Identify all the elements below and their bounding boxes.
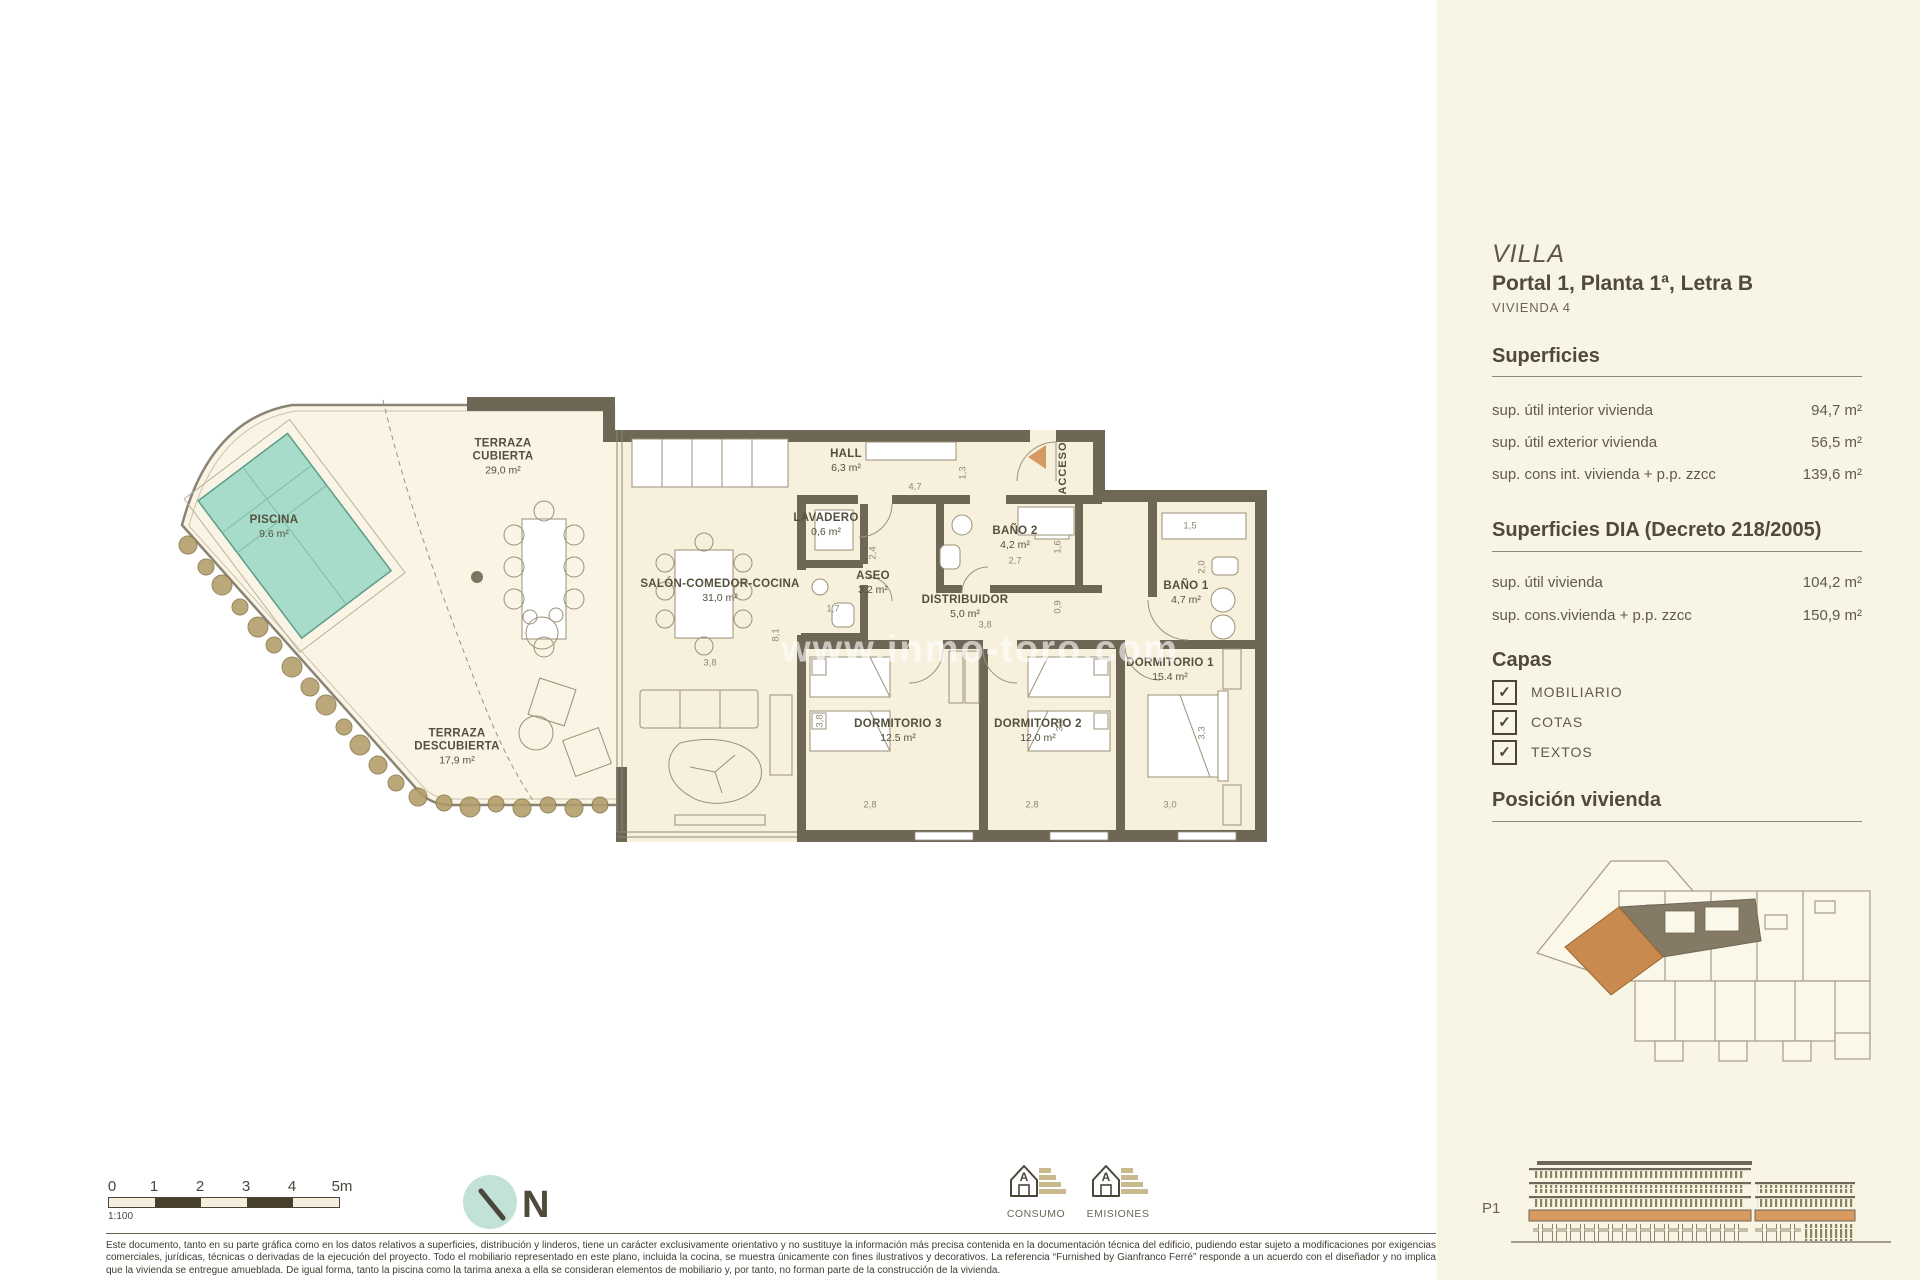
room-label: TERRAZA DESCUBIERTA17,9 m²	[414, 728, 500, 767]
svg-text:A: A	[1102, 1170, 1111, 1184]
room-label: HALL6,3 m²	[830, 448, 862, 474]
rule	[1492, 551, 1862, 552]
scale-bar: 0 1 2 3 4 5m 1:100	[108, 1178, 368, 1228]
row-value: 56,5 m²	[1811, 434, 1862, 451]
energy-label: CONSUMO	[1000, 1208, 1072, 1220]
room-label: LAVADERO0,6 m²	[793, 512, 858, 538]
row-label: sup. cons int. vivienda + p.p. zzcc	[1492, 466, 1716, 483]
room-label: DORMITORIO 212.0 m²	[994, 718, 1082, 744]
dimension-label: 0,9	[1053, 600, 1064, 613]
unit-number: VIVIENDA 4	[1492, 300, 1571, 315]
energy-label: EMISIONES	[1082, 1208, 1154, 1220]
floor-plan: ACCESO www.inmo-toro.com TERRAZA CUBIERT…	[170, 395, 1270, 855]
superficies-row: sup. útil exterior vivienda 56,5 m²	[1492, 434, 1862, 452]
row-value: 139,6 m²	[1803, 466, 1862, 483]
dimension-label: 8,1	[771, 628, 782, 641]
dimension-label: 4,7	[908, 482, 921, 493]
rule	[1492, 821, 1862, 822]
unit-subtitle: Portal 1, Planta 1ª, Letra B	[1492, 272, 1753, 296]
superficies-heading: Superficies	[1492, 345, 1600, 368]
scale-tick: 5m	[332, 1178, 353, 1195]
dimension-label: 1,3	[958, 466, 969, 479]
dimension-label: 2,8	[1025, 800, 1038, 811]
dimension-label: 2,4	[868, 546, 879, 559]
superficies-dia-heading: Superficies DIA (Decreto 218/2005)	[1492, 519, 1821, 542]
plan-labels: ACCESO www.inmo-toro.com TERRAZA CUBIERT…	[170, 395, 1270, 855]
room-label: SALÓN-COMEDOR-COCINA31,0 m²	[640, 578, 799, 604]
scale-tick: 1	[150, 1178, 158, 1195]
posicion-heading: Posición vivienda	[1492, 789, 1661, 812]
disclaimer-text: Este documento, tanto en su parte gráfic…	[106, 1240, 1436, 1277]
site-position-diagram	[1515, 845, 1885, 1105]
checkbox-checked[interactable]: ✓	[1492, 740, 1517, 765]
checkbox-label: TEXTOS	[1531, 744, 1593, 760]
scale-tick: 2	[196, 1178, 204, 1195]
room-label: TERRAZA CUBIERTA29,0 m²	[473, 438, 534, 477]
dimension-label: 3,8	[815, 714, 826, 727]
acceso-label: ACCESO	[1057, 441, 1069, 494]
dimension-label: 1,5	[1183, 521, 1196, 532]
energy-house-icon: A	[1087, 1160, 1149, 1202]
row-value: 104,2 m²	[1803, 574, 1862, 591]
room-label: PISCINA9.6 m²	[250, 514, 299, 540]
checkbox-label: COTAS	[1531, 714, 1583, 730]
layer-toggle-cotas[interactable]: ✓ COTAS	[1492, 710, 1583, 734]
superficies-row: sup. cons int. vivienda + p.p. zzcc 139,…	[1492, 466, 1862, 484]
room-label: DISTRIBUIDOR5,0 m²	[922, 594, 1009, 620]
row-label: sup. útil vivienda	[1492, 574, 1603, 591]
room-label: DORMITORIO 312.5 m²	[854, 718, 942, 744]
north-label: N	[522, 1184, 549, 1226]
room-label: BAÑO 24,2 m²	[992, 525, 1037, 551]
row-label: sup. cons.vivienda + p.p. zzcc	[1492, 607, 1692, 624]
sidebar: VILLA Portal 1, Planta 1ª, Letra B VIVIE…	[1437, 0, 1920, 1280]
dimension-label: 2,7	[1008, 556, 1021, 567]
building-elevation	[1499, 1158, 1899, 1248]
row-label: sup. útil interior vivienda	[1492, 402, 1653, 419]
superficies-dia-row: sup. útil vivienda 104,2 m²	[1492, 574, 1862, 592]
page: ACCESO www.inmo-toro.com TERRAZA CUBIERT…	[0, 0, 1920, 1280]
footer-divider	[106, 1233, 1436, 1234]
floor-indicator: P1	[1482, 1200, 1500, 1217]
dimension-label: 3,9	[1055, 718, 1066, 731]
room-label: ASEO3,2 m²	[856, 570, 890, 596]
dimension-label: 3,0	[1163, 800, 1176, 811]
energy-emisiones: A EMISIONES	[1082, 1160, 1154, 1220]
checkbox-checked[interactable]: ✓	[1492, 710, 1517, 735]
dimension-label: 3,8	[703, 658, 716, 669]
scale-ratio: 1:100	[108, 1211, 133, 1222]
checkbox-checked[interactable]: ✓	[1492, 680, 1517, 705]
capas-heading: Capas	[1492, 649, 1552, 672]
dimension-label: 1,7	[826, 604, 839, 615]
dimension-label: 2,0	[1197, 560, 1208, 573]
layer-toggle-textos[interactable]: ✓ TEXTOS	[1492, 740, 1593, 764]
north-indicator: N	[460, 1172, 590, 1232]
layer-toggle-mobiliario[interactable]: ✓ MOBILIARIO	[1492, 680, 1623, 704]
superficies-dia-row: sup. cons.vivienda + p.p. zzcc 150,9 m²	[1492, 607, 1862, 625]
dimension-label: 1,6	[1053, 540, 1064, 553]
scale-tick: 3	[242, 1178, 250, 1195]
scale-tick: 4	[288, 1178, 296, 1195]
scale-strip	[108, 1197, 340, 1208]
energy-consumo: A CONSUMO	[1000, 1160, 1072, 1220]
row-value: 94,7 m²	[1811, 402, 1862, 419]
row-value: 150,9 m²	[1803, 607, 1862, 624]
scale-numbers: 0 1 2 3 4 5m	[108, 1178, 338, 1194]
watermark: www.inmo-toro.com	[781, 629, 1179, 672]
dimension-label: 2,8	[863, 800, 876, 811]
room-label: BAÑO 14,7 m²	[1163, 580, 1208, 606]
energy-house-icon: A	[1005, 1160, 1067, 1202]
rule	[1492, 376, 1862, 377]
dimension-label: 3,3	[1197, 726, 1208, 739]
checkbox-label: MOBILIARIO	[1531, 684, 1623, 700]
row-label: sup. útil exterior vivienda	[1492, 434, 1657, 451]
svg-text:A: A	[1020, 1170, 1029, 1184]
scale-tick: 0	[108, 1178, 116, 1195]
project-title: VILLA	[1492, 240, 1565, 269]
superficies-row: sup. útil interior vivienda 94,7 m²	[1492, 402, 1862, 420]
